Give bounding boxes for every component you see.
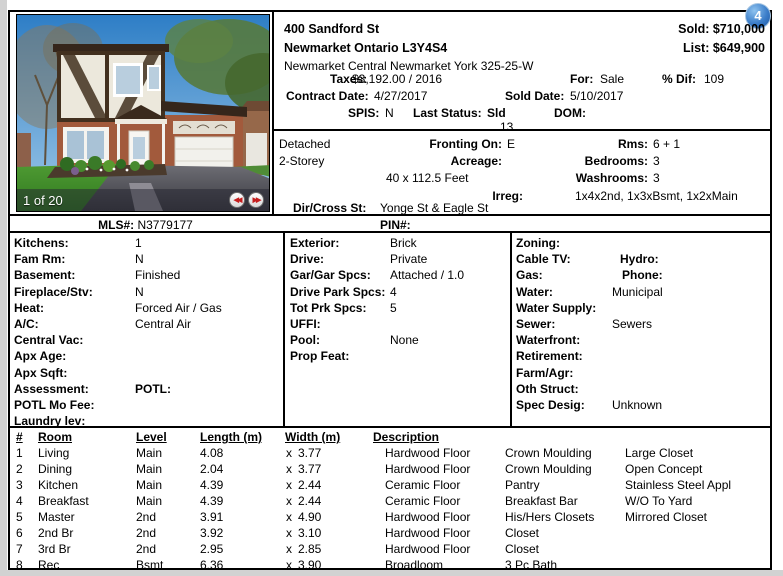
- bedrooms-label: Bedrooms:: [520, 154, 648, 168]
- detail-label: Spec Desig:: [516, 398, 612, 412]
- detail-label: Pool:: [290, 333, 390, 347]
- room-desc2: 3 Pc Bath: [505, 558, 557, 572]
- last-status-label: Last Status:: [413, 106, 482, 120]
- detail-row: A/C:Central Air: [14, 317, 222, 333]
- detail-label: Laundry lev:: [14, 414, 135, 428]
- dimension-x: x: [286, 462, 292, 476]
- pct-dif-label: % Dif:: [662, 72, 696, 86]
- dom-label: DOM:: [554, 106, 586, 120]
- room-desc1: Hardwood Floor: [385, 526, 470, 540]
- for-value: Sale: [600, 72, 624, 86]
- detail-row: Zoning:: [516, 236, 663, 252]
- for-label: For:: [570, 72, 593, 86]
- room-name: Living: [38, 446, 69, 460]
- room-desc2: Pantry: [505, 478, 540, 492]
- detail-row: Farm/Agr:: [516, 366, 663, 382]
- detail-value: N: [135, 285, 144, 299]
- room-num: 4: [16, 494, 23, 508]
- detail-label: Fam Rm:: [14, 252, 135, 266]
- col-header-level: Level: [136, 430, 167, 444]
- room-width: 3.77: [298, 462, 321, 476]
- room-width: 3.77: [298, 446, 321, 460]
- room-desc2: Crown Moulding: [505, 462, 592, 476]
- detail-row: Gas:Phone:: [516, 268, 663, 284]
- dimension-x: x: [286, 558, 292, 572]
- room-width: 4.90: [298, 510, 321, 524]
- listing-page: 1 of 20 ◀◀ ▶▶ 4 400 Sandford St Sold: $7…: [0, 0, 783, 576]
- detail-row: Pool:None: [290, 333, 464, 349]
- detail-label: Fireplace/Stv:: [14, 285, 135, 299]
- room-level: 2nd: [136, 542, 156, 556]
- detail-row: Central Vac:: [14, 333, 222, 349]
- last-status-value: Sld: [487, 106, 506, 120]
- detail-row: Oth Struct:: [516, 382, 663, 398]
- pin-label: PIN#:: [380, 218, 411, 232]
- details-column-left: Kitchens:1 Fam Rm:N Basement:Finished Fi…: [14, 236, 222, 430]
- detail-value: Finished: [135, 268, 180, 282]
- detail-row: Prop Feat:: [290, 349, 464, 365]
- room-row: 62nd Br2nd3.92x3.10Hardwood FloorCloset: [0, 526, 772, 542]
- room-desc1: Hardwood Floor: [385, 446, 470, 460]
- pct-dif-value: 109: [704, 72, 724, 86]
- rms-label: Rms:: [520, 137, 648, 151]
- detail-row: Fireplace/Stv:N: [14, 285, 222, 301]
- details-column-right: Zoning: Cable TV:Hydro: Gas:Phone: Water…: [516, 236, 663, 414]
- room-name: 3rd Br: [38, 542, 71, 556]
- detail-value: Attached / 1.0: [390, 268, 464, 282]
- fast-forward-icon: ▶▶: [253, 197, 260, 204]
- room-num: 2: [16, 462, 23, 476]
- detail-row: POTL Mo Fee:: [14, 398, 222, 414]
- detail-row: Exterior:Brick: [290, 236, 464, 252]
- detail-value: 5: [390, 301, 397, 315]
- photo-counter: 1 of 20: [23, 193, 63, 208]
- room-length: 4.39: [200, 494, 223, 508]
- room-length: 6.36: [200, 558, 223, 572]
- detail-row: Apx Age:: [14, 349, 222, 365]
- detail-label: Central Vac:: [14, 333, 135, 347]
- room-level: 2nd: [136, 526, 156, 540]
- detail-value: Unknown: [612, 398, 662, 412]
- detail-label: Cable TV:: [516, 252, 612, 266]
- detail-label-secondary: Phone:: [612, 268, 663, 282]
- photo-prev-button[interactable]: ◀◀: [229, 192, 245, 208]
- room-num: 6: [16, 526, 23, 540]
- col-header-width: Width (m): [285, 430, 340, 444]
- room-desc3: Open Concept: [625, 462, 702, 476]
- divider-grid-col1: [283, 233, 285, 426]
- sold-date-value: 5/10/2017: [570, 89, 623, 103]
- contract-date-label: Contract Date:: [286, 89, 369, 103]
- detail-row: Apx Sqft:: [14, 366, 222, 382]
- community-line: Newmarket Central Newmarket York 325-25-…: [284, 59, 533, 73]
- list-value: $649,900: [713, 41, 765, 55]
- sold-label: Sold:: [678, 22, 709, 36]
- detail-label: Apx Sqft:: [14, 366, 135, 380]
- list-price: List: $649,900: [683, 41, 765, 55]
- room-desc2: Breakfast Bar: [505, 494, 578, 508]
- detail-row: Basement:Finished: [14, 268, 222, 284]
- sold-date-label: Sold Date:: [505, 89, 564, 103]
- detail-value: None: [390, 333, 419, 347]
- room-width: 3.10: [298, 526, 321, 540]
- detail-row: Sewer:Sewers: [516, 317, 663, 333]
- fronting-value: E: [507, 137, 515, 151]
- detail-label: Assessment:: [14, 382, 135, 396]
- taxes-value: $3,192.00 / 2016: [352, 72, 442, 86]
- room-num: 7: [16, 542, 23, 556]
- room-num: 3: [16, 478, 23, 492]
- detail-label: Exterior:: [290, 236, 390, 250]
- room-num: 1: [16, 446, 23, 460]
- dir-cross-value: Yonge St & Eagle St: [380, 201, 488, 215]
- room-desc3: Mirrored Closet: [625, 510, 707, 524]
- divider-header: [272, 129, 772, 131]
- detail-value: Municipal: [612, 285, 663, 299]
- detail-row: Retirement:: [516, 349, 663, 365]
- room-length: 2.95: [200, 542, 223, 556]
- col-header-description: Description: [373, 430, 439, 444]
- room-length: 3.91: [200, 510, 223, 524]
- detail-value: 4: [390, 285, 397, 299]
- room-desc1: Ceramic Floor: [385, 478, 460, 492]
- detail-label: Basement:: [14, 268, 135, 282]
- detail-label: Kitchens:: [14, 236, 135, 250]
- detail-label: Drive Park Spcs:: [290, 285, 390, 299]
- detail-row: Cable TV:Hydro:: [516, 252, 663, 268]
- detail-label: Gas:: [516, 268, 612, 282]
- detail-value: Brick: [390, 236, 417, 250]
- detail-row: Heat:Forced Air / Gas: [14, 301, 222, 317]
- detail-label: Sewer:: [516, 317, 612, 331]
- room-width: 2.44: [298, 478, 321, 492]
- listing-photo: 1 of 20 ◀◀ ▶▶: [16, 14, 270, 212]
- room-desc2: His/Hers Closets: [505, 510, 594, 524]
- detail-label: A/C:: [14, 317, 135, 331]
- room-length: 4.08: [200, 446, 223, 460]
- dom-value: 13: [500, 120, 513, 134]
- detail-label: UFFI:: [290, 317, 390, 331]
- dimension-x: x: [286, 494, 292, 508]
- room-length: 4.39: [200, 478, 223, 492]
- room-name: 2nd Br: [38, 526, 73, 540]
- rms-value: 6 + 1: [653, 137, 680, 151]
- divider-photo-vertical: [272, 10, 274, 216]
- room-level: Main: [136, 462, 162, 476]
- room-name: Master: [38, 510, 75, 524]
- room-level: 2nd: [136, 510, 156, 524]
- detail-row: Spec Desig:Unknown: [516, 398, 663, 414]
- acreage-label: Acreage:: [380, 154, 502, 168]
- address-line: 400 Sandford St: [284, 22, 379, 36]
- room-desc1: Hardwood Floor: [385, 462, 470, 476]
- fronting-label: Fronting On:: [380, 137, 502, 151]
- dir-cross-label: Dir/Cross St:: [293, 201, 366, 215]
- dimension-x: x: [286, 446, 292, 460]
- detail-label: Prop Feat:: [290, 349, 390, 363]
- dimension-x: x: [286, 542, 292, 556]
- room-level: Main: [136, 478, 162, 492]
- city-postal-line: Newmarket Ontario L3Y4S4: [284, 41, 447, 55]
- detail-value: N: [135, 252, 144, 266]
- room-desc2: Closet: [505, 542, 539, 556]
- bedrooms-value: 3: [653, 154, 660, 168]
- dimension-x: x: [286, 478, 292, 492]
- detail-label: Water:: [516, 285, 612, 299]
- detail-row: Fam Rm:N: [14, 252, 222, 268]
- detail-row: Drive:Private: [290, 252, 464, 268]
- room-length: 3.92: [200, 526, 223, 540]
- detail-label: Gar/Gar Spcs:: [290, 268, 390, 282]
- room-name: Kitchen: [38, 478, 78, 492]
- detail-value: Forced Air / Gas: [135, 301, 222, 315]
- room-desc1: Broadloom: [385, 558, 443, 572]
- room-row: 1LivingMain4.08x3.77Hardwood FloorCrown …: [0, 446, 772, 462]
- detail-value: Private: [390, 252, 427, 266]
- detail-value: Central Air: [135, 317, 191, 331]
- room-name: Breakfast: [38, 494, 89, 508]
- detail-row: Drive Park Spcs:4: [290, 285, 464, 301]
- divider-grid-col2: [510, 233, 512, 426]
- room-name: Rec: [38, 558, 59, 572]
- dimension-x: x: [286, 510, 292, 524]
- col-header-num: #: [16, 430, 23, 444]
- room-row: 4BreakfastMain4.39x2.44Ceramic FloorBrea…: [0, 494, 772, 510]
- room-name: Dining: [38, 462, 72, 476]
- mls-label: MLS#:: [98, 218, 134, 232]
- sold-price: Sold: $710,000: [678, 22, 765, 36]
- room-num: 8: [16, 558, 23, 572]
- detail-row: Laundry lev:: [14, 414, 222, 430]
- spis-label: SPIS:: [348, 106, 379, 120]
- contract-date-value: 4/27/2017: [374, 89, 427, 103]
- spis-value: N: [385, 106, 394, 120]
- room-desc1: Hardwood Floor: [385, 542, 470, 556]
- room-desc3: Large Closet: [625, 446, 693, 460]
- sold-value: $710,000: [713, 22, 765, 36]
- detail-row: Assessment:POTL:: [14, 382, 222, 398]
- detail-label: Heat:: [14, 301, 135, 315]
- room-row: 2DiningMain2.04x3.77Hardwood FloorCrown …: [0, 462, 772, 478]
- pin-number: PIN#:: [284, 218, 510, 232]
- col-header-room: Room: [38, 430, 72, 444]
- rewind-icon: ◀◀: [234, 197, 241, 204]
- lot-size: 40 x 112.5 Feet: [386, 171, 469, 185]
- room-num: 5: [16, 510, 23, 524]
- room-level: Main: [136, 446, 162, 460]
- washrooms-label: Washrooms:: [520, 171, 648, 185]
- detail-value: Sewers: [612, 317, 652, 331]
- detail-row: Water Supply:: [516, 301, 663, 317]
- room-row: 3KitchenMain4.39x2.44Ceramic FloorPantry…: [0, 478, 772, 494]
- room-width: 2.85: [298, 542, 321, 556]
- room-row: 5Master2nd3.91x4.90Hardwood FloorHis/Her…: [0, 510, 772, 526]
- detail-label: POTL Mo Fee:: [14, 398, 135, 412]
- photo-next-button[interactable]: ▶▶: [248, 192, 264, 208]
- detail-row: Water:Municipal: [516, 285, 663, 301]
- property-style: 2-Storey: [279, 154, 324, 168]
- washrooms-value: 3: [653, 171, 660, 185]
- detail-row: UFFI:: [290, 317, 464, 333]
- detail-label: Water Supply:: [516, 301, 612, 315]
- detail-value: 1: [135, 236, 142, 250]
- detail-label: Farm/Agr:: [516, 366, 612, 380]
- detail-row: Waterfront:: [516, 333, 663, 349]
- detail-label: Zoning:: [516, 236, 612, 250]
- washrooms-detail: 1x4x2nd, 1x3xBsmt, 1x2xMain: [575, 189, 738, 203]
- detail-row: Gar/Gar Spcs:Attached / 1.0: [290, 268, 464, 284]
- room-level: Bsmt: [136, 558, 163, 572]
- detail-label: Oth Struct:: [516, 382, 612, 396]
- detail-row: Tot Prk Spcs:5: [290, 301, 464, 317]
- detail-label-secondary: POTL:: [135, 382, 171, 396]
- room-width: 2.44: [298, 494, 321, 508]
- property-type: Detached: [279, 137, 330, 151]
- detail-label-secondary: Hydro:: [612, 252, 659, 266]
- mls-number: MLS#: N3779177: [8, 218, 283, 232]
- room-length: 2.04: [200, 462, 223, 476]
- details-column-middle: Exterior:Brick Drive:Private Gar/Gar Spc…: [290, 236, 464, 366]
- col-header-length: Length (m): [200, 430, 262, 444]
- detail-label: Waterfront:: [516, 333, 612, 347]
- room-desc3: Stainless Steel Appl: [625, 478, 731, 492]
- room-desc3: W/O To Yard: [625, 494, 692, 508]
- house-photo-illustration: [17, 15, 269, 211]
- detail-label: Drive:: [290, 252, 390, 266]
- detail-label: Apx Age:: [14, 349, 135, 363]
- list-label: List:: [683, 41, 709, 55]
- room-desc2: Crown Moulding: [505, 446, 592, 460]
- room-table-header: # Room Level Length (m) Width (m) Descri…: [0, 430, 772, 446]
- room-level: Main: [136, 494, 162, 508]
- detail-label: Retirement:: [516, 349, 612, 363]
- room-width: 3.90: [298, 558, 321, 572]
- mls-value: N3779177: [137, 218, 192, 232]
- detail-label: Tot Prk Spcs:: [290, 301, 390, 315]
- detail-row: Kitchens:1: [14, 236, 222, 252]
- room-desc1: Hardwood Floor: [385, 510, 470, 524]
- dimension-x: x: [286, 526, 292, 540]
- room-row: 73rd Br2nd2.95x2.85Hardwood FloorCloset: [0, 542, 772, 558]
- room-row: 8RecBsmt6.36x3.90Broadloom3 Pc Bath: [0, 558, 772, 574]
- room-desc2: Closet: [505, 526, 539, 540]
- room-desc1: Ceramic Floor: [385, 494, 460, 508]
